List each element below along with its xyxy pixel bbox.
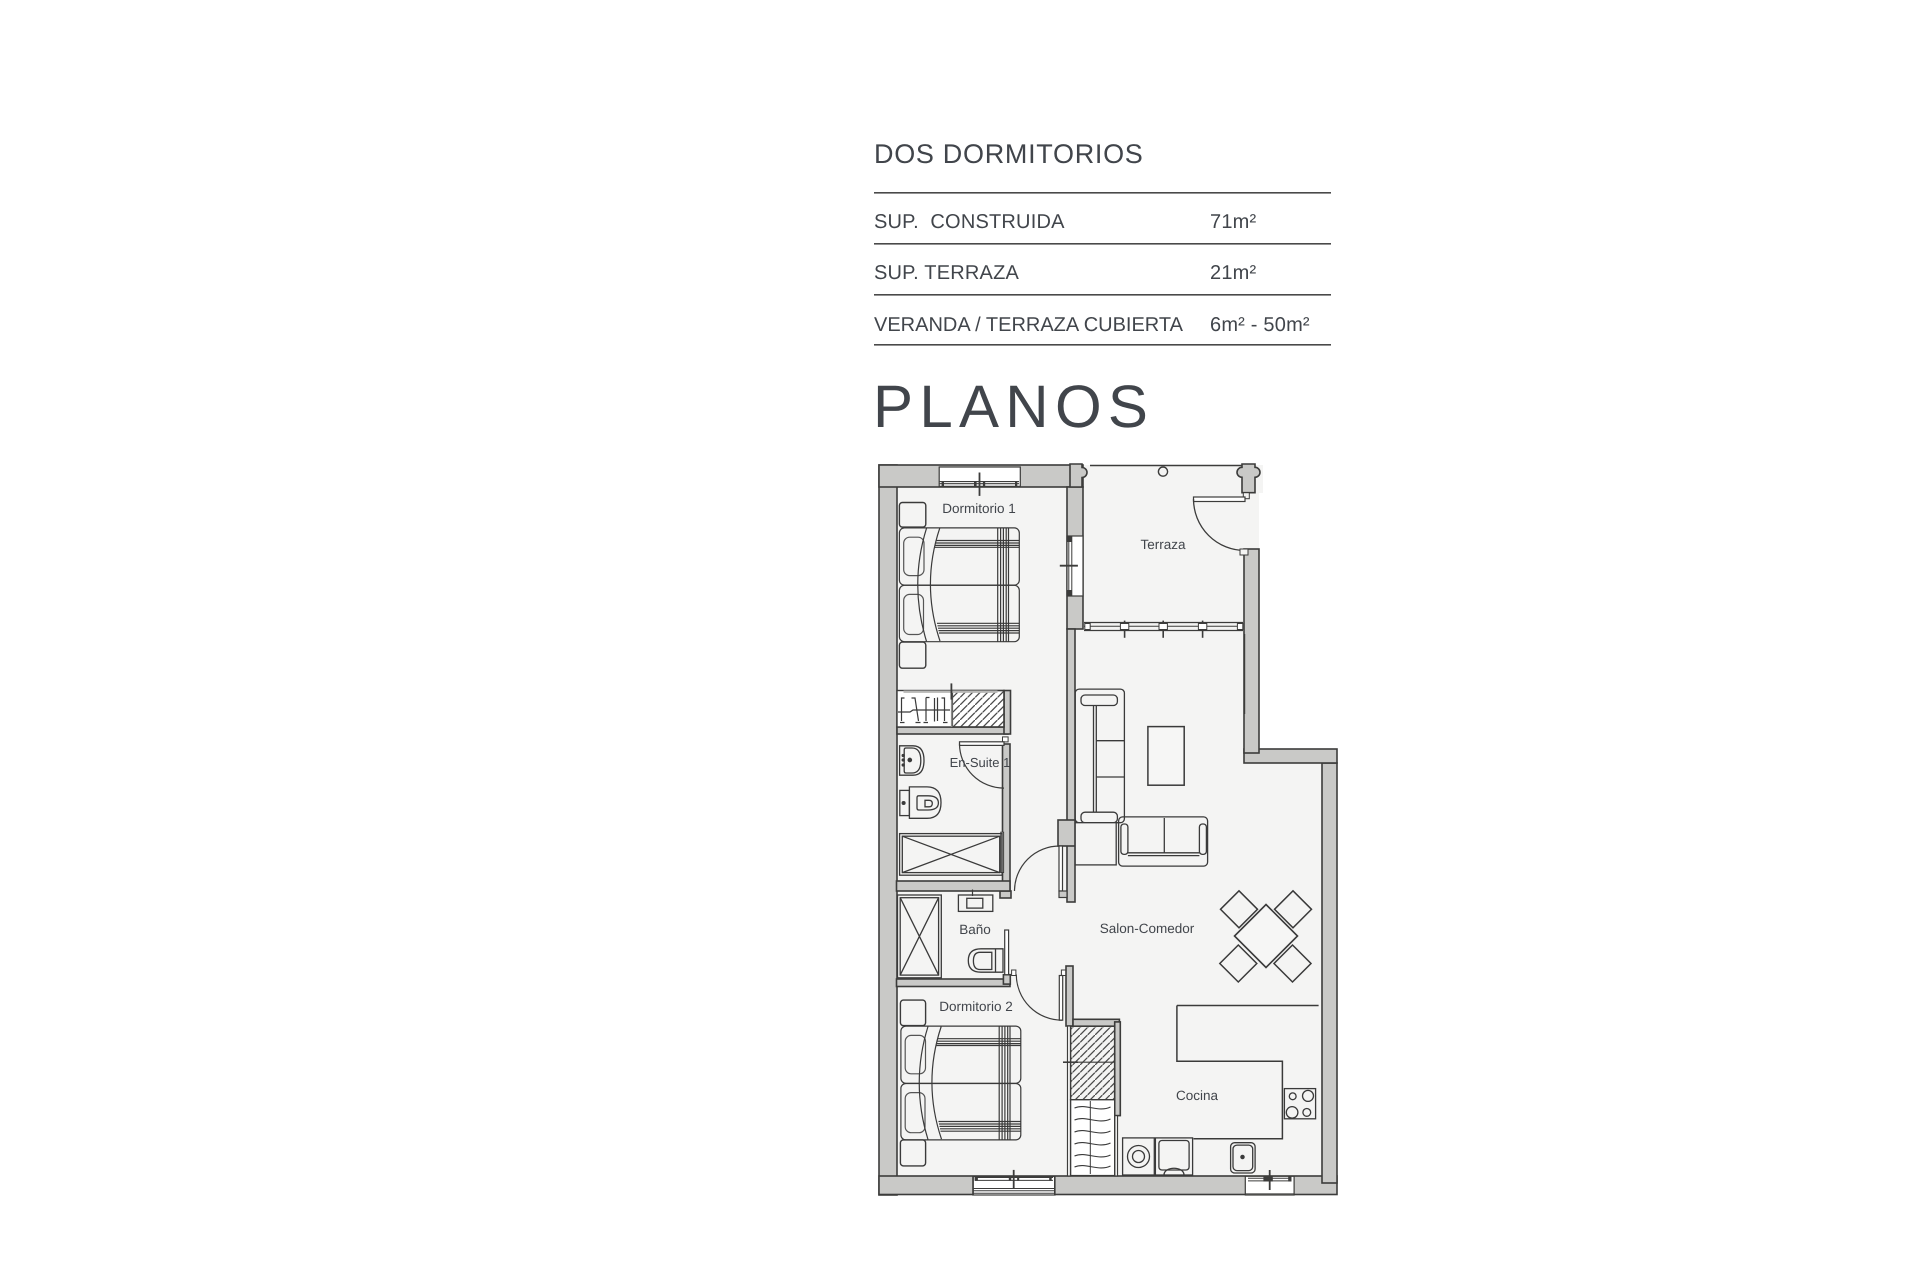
svg-text:71m²: 71m²: [1210, 211, 1257, 233]
svg-text:VERANDA / TERRAZA CUBIERTA: VERANDA / TERRAZA CUBIERTA: [874, 314, 1184, 336]
svg-text:PLANOS: PLANOS: [873, 373, 1154, 440]
svg-text:Dormitorio 2: Dormitorio 2: [939, 999, 1013, 1014]
svg-text:SUP. CONSTRUIDA: SUP. CONSTRUIDA: [874, 211, 1065, 233]
svg-text:6m² - 50m²: 6m² - 50m²: [1210, 314, 1310, 336]
svg-text:Cocina: Cocina: [1176, 1088, 1219, 1103]
svg-text:En-Suite 1: En-Suite 1: [950, 755, 1011, 770]
svg-text:Baño: Baño: [959, 922, 991, 937]
svg-text:21m²: 21m²: [1210, 262, 1257, 284]
svg-text:SUP. TERRAZA: SUP. TERRAZA: [874, 262, 1019, 284]
svg-text:Dormitorio 1: Dormitorio 1: [942, 501, 1016, 516]
svg-text:DOS DORMITORIOS: DOS DORMITORIOS: [874, 139, 1144, 169]
svg-text:Salon-Comedor: Salon-Comedor: [1100, 921, 1195, 936]
svg-text:Terraza: Terraza: [1140, 537, 1186, 552]
